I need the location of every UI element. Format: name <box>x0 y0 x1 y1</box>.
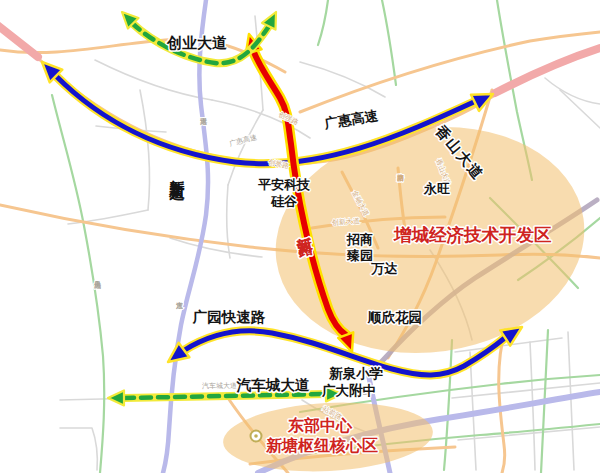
map-canvas: 双港大道 凤凰城大道 东江大道 东步大道 创强路 创誉路 金融大道 创新大道 香… <box>0 0 600 473</box>
station-icon-dot <box>254 434 258 438</box>
label-wanda: 万达 <box>370 261 398 276</box>
label-guangyuan-expressway: 广园快速路 <box>192 309 266 325</box>
map-svg: 双港大道 凤凰城大道 东江大道 东步大道 创强路 创誉路 金融大道 创新大道 香… <box>0 0 600 473</box>
arrowhead-w-green <box>108 391 124 406</box>
label-zengcheng-zone: 增城经济技术开发区 <box>393 225 552 245</box>
label-zhaoshang-line1: 招商 <box>346 232 373 247</box>
label-dongbu-center-line1: 东部中心 <box>287 416 353 435</box>
label-chuangye-avenue: 创业大道 <box>166 34 228 52</box>
label-yongwang: 永旺 <box>423 181 450 196</box>
label-qichecheng-small: 汽车城大道 <box>202 382 237 390</box>
label-shunxin-garden: 顺欣花园 <box>367 309 422 325</box>
label-xinquan-school: 新泉小学 <box>328 365 384 381</box>
label-dongjiang-avenue: 东江大道 <box>176 302 183 310</box>
label-qichecheng-avenue: 汽车城大道 <box>236 377 310 393</box>
label-guanghui-expressway: 广惠高速 <box>322 107 379 131</box>
label-pingan-tech-line1: 平安科技 <box>258 177 311 192</box>
label-guangda-school: 广大附中 <box>321 382 376 398</box>
label-zhaoshang-line2: 臻园 <box>346 248 373 263</box>
label-xinxin-avenue: 新新大道 <box>168 167 186 201</box>
label-dongbu-center-line2: 新塘枢纽核心区 <box>265 436 378 455</box>
label-pingan-tech-line2: 硅谷 <box>270 194 298 209</box>
